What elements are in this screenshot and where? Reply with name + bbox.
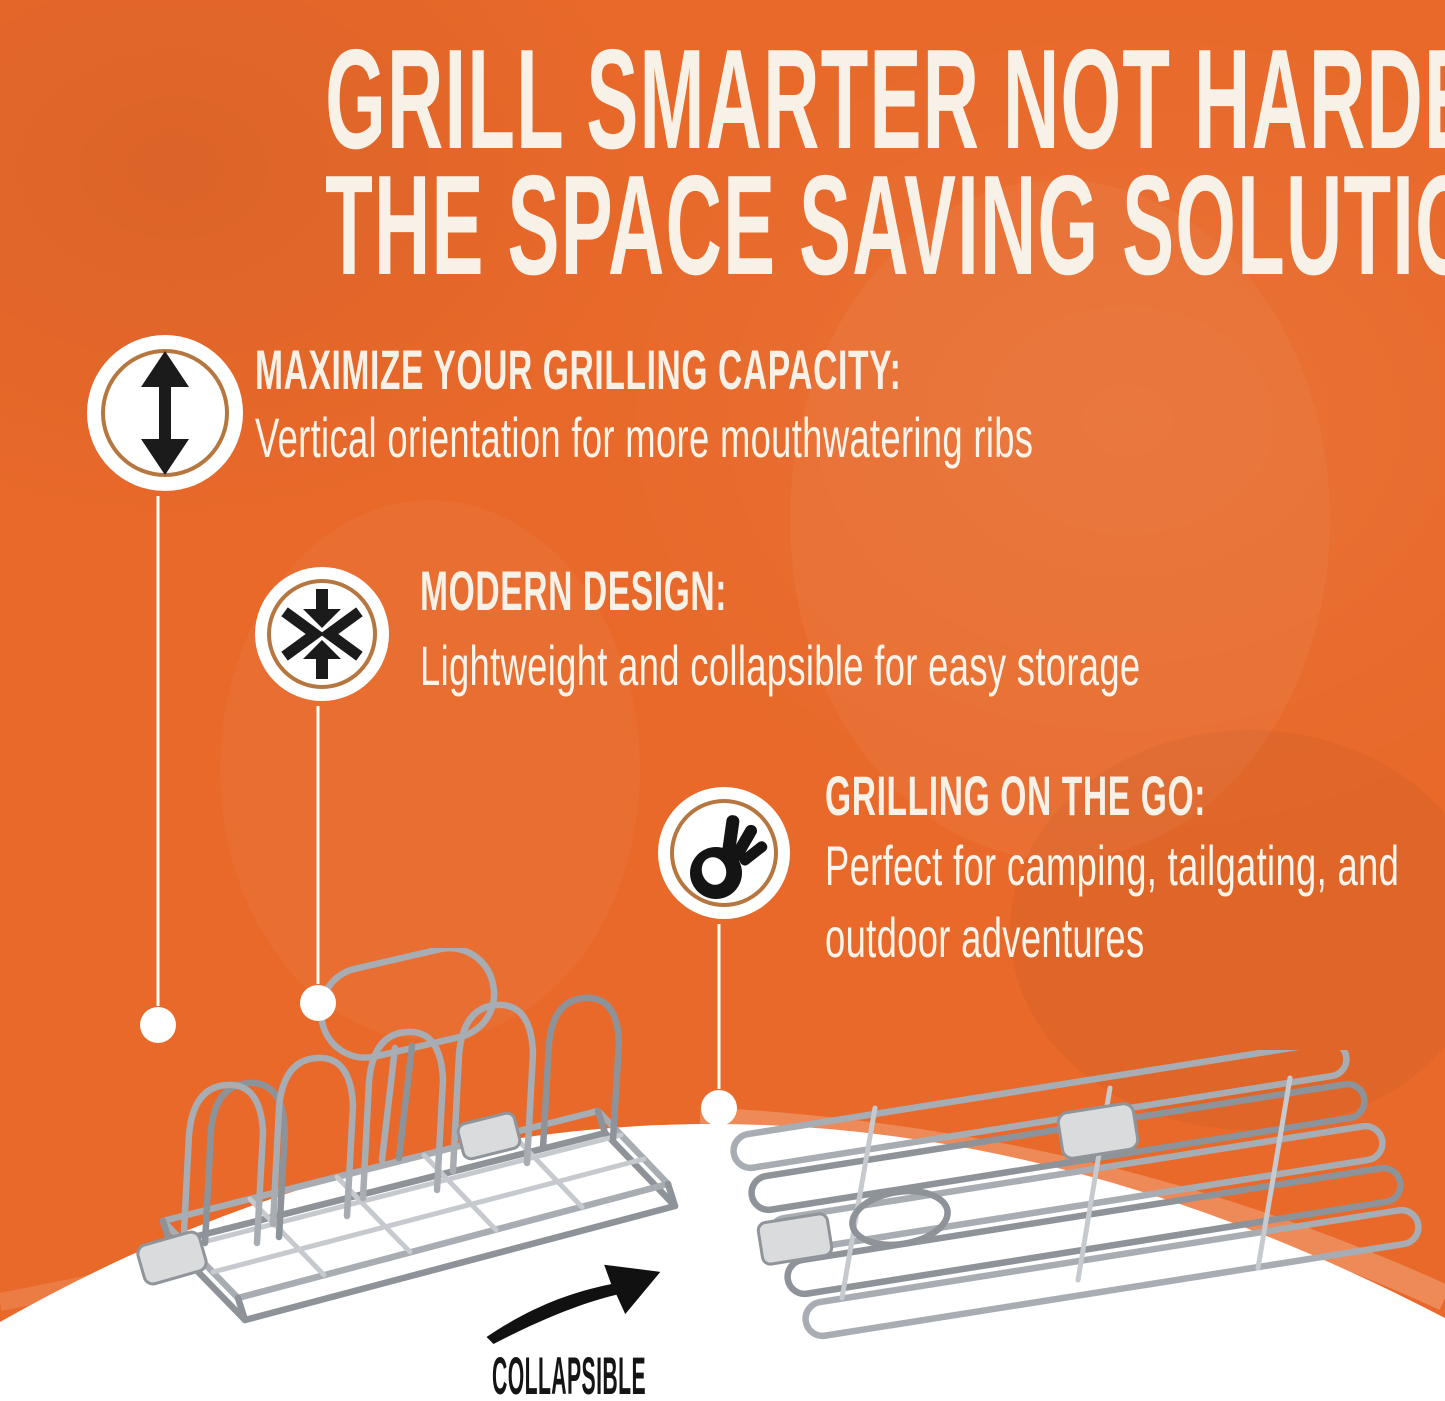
leader-dot bbox=[300, 985, 336, 1021]
headline-line2: THE SPACE SAVING SOLUTION bbox=[325, 156, 1120, 282]
collapsible-caption: COLLAPSIBLE bbox=[492, 1350, 877, 1401]
headline-line1: GRILL SMARTER NOT HARDER: bbox=[325, 30, 1120, 156]
headline: GRILL SMARTER NOT HARDER: THE SPACE SAVI… bbox=[0, 30, 1445, 282]
leader-dot bbox=[701, 1090, 737, 1126]
leader-dot bbox=[140, 1007, 176, 1043]
ok-hand-icon bbox=[656, 785, 792, 921]
feature-2-heading: MODERN DESIGN: bbox=[420, 563, 932, 619]
feature-2-body: Lightweight and collapsible for easy sto… bbox=[420, 630, 1445, 702]
feature-3-body: Perfect for camping, tailgating, and out… bbox=[825, 830, 1445, 974]
compress-arrows-icon bbox=[253, 565, 391, 703]
product-infographic: GRILL SMARTER NOT HARDER: THE SPACE SAVI… bbox=[0, 0, 1445, 1401]
vertical-double-arrow-icon bbox=[85, 333, 245, 493]
feature-3-heading: GRILLING ON THE GO: bbox=[825, 768, 1445, 824]
curved-arrow-icon bbox=[483, 1256, 663, 1344]
feature-1-heading: MAXIMIZE YOUR GRILLING CAPACITY: bbox=[255, 342, 1332, 398]
feature-1-body: Vertical orientation for more mouthwater… bbox=[255, 402, 1445, 474]
